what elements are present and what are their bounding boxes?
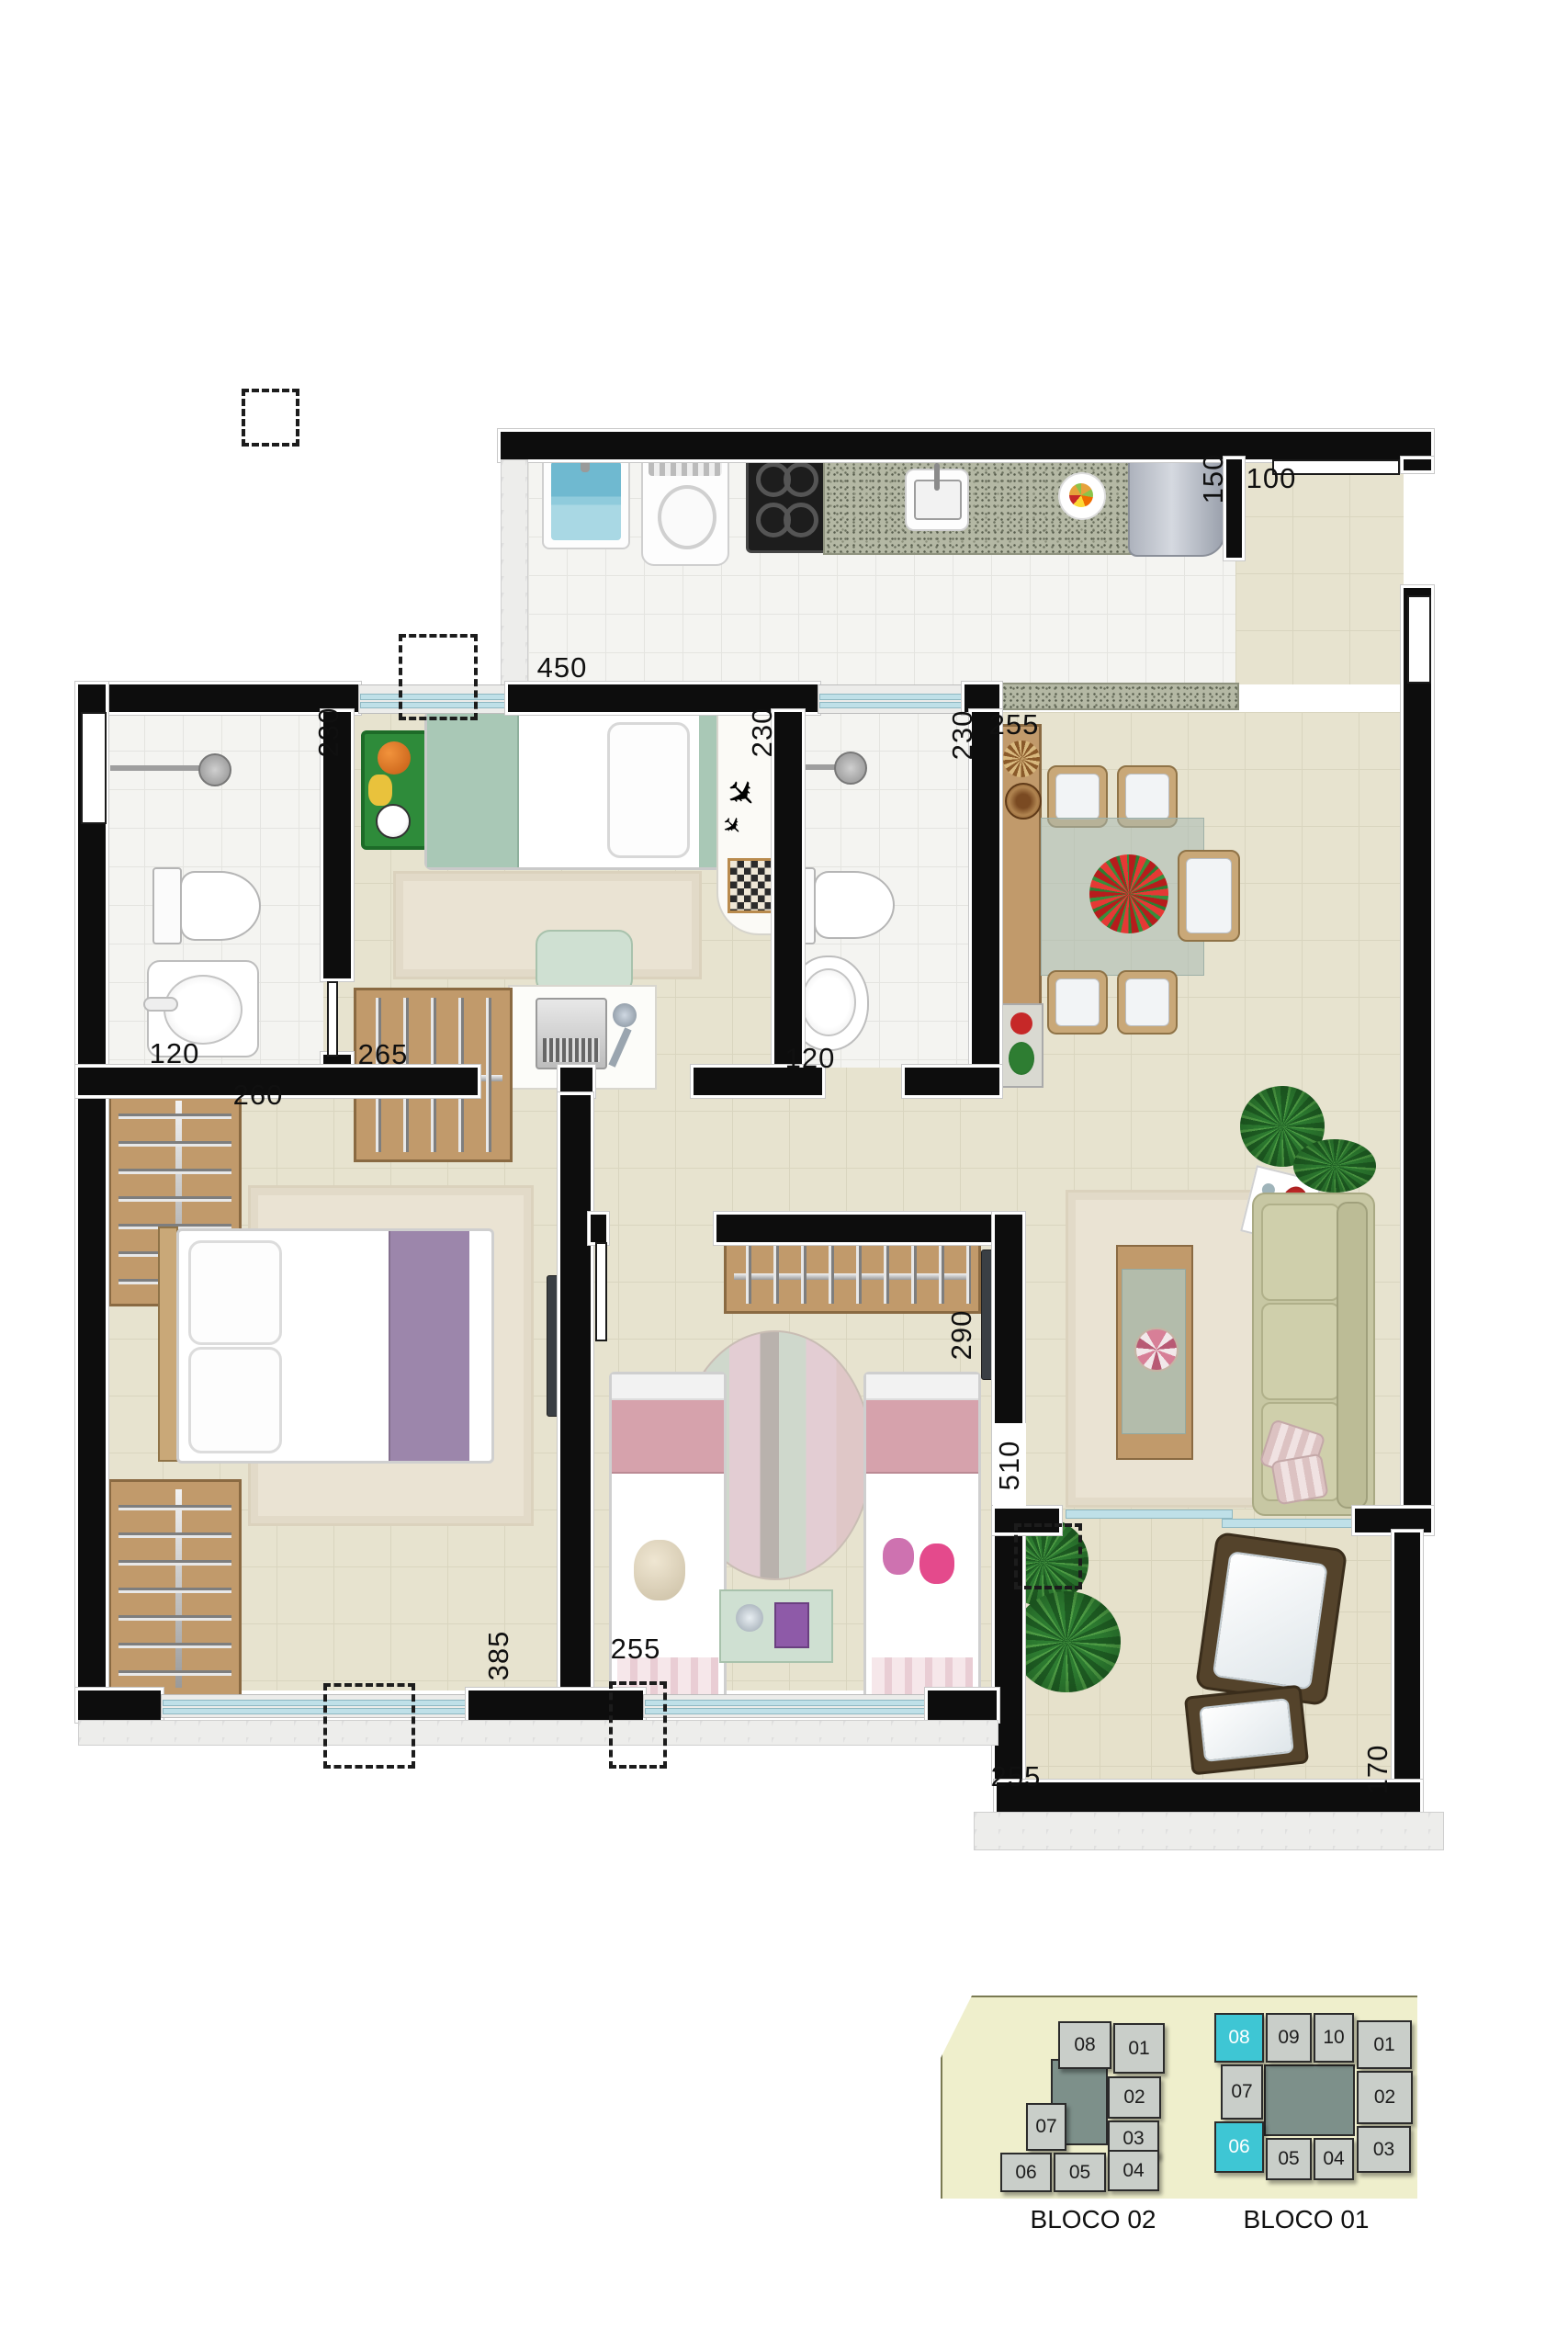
toy-box: [361, 730, 429, 850]
sofa-pillow: [1270, 1453, 1328, 1506]
teddy-bear-icon: [634, 1540, 685, 1600]
hangers-icon: [118, 1489, 231, 1688]
flower-bowl-icon: [1134, 1328, 1179, 1372]
keyplan-unit-b01-05[interactable]: 05: [1266, 2138, 1312, 2180]
keyplan-unit-b02-07[interactable]: 07: [1026, 2103, 1066, 2151]
wall: [928, 1690, 997, 1720]
plush-toy-icon: [368, 775, 392, 806]
sink-faucet: [934, 463, 940, 491]
laundry-tub-water: [551, 461, 621, 540]
kids-single-bed: [424, 710, 726, 870]
chair-seat: [1125, 978, 1169, 1026]
keyplan-unit-b01-09[interactable]: 09: [1266, 2013, 1312, 2063]
keyplan-block01-label: BLOCO 01: [1205, 2205, 1407, 2234]
wall: [997, 1782, 1420, 1812]
armchair-cushion: [1213, 1551, 1328, 1690]
window-glass: [163, 1700, 468, 1706]
palm-plant-icon: [1012, 1591, 1121, 1692]
chair-seat: [1186, 858, 1232, 933]
bed-blanket-pink: [866, 1400, 978, 1474]
basketball-icon: [378, 741, 411, 775]
master-double-bed: [176, 1228, 494, 1464]
bed-blanket-pink: [612, 1400, 724, 1474]
dim-label-girls-wardrobe: 290: [945, 1293, 978, 1377]
keyplan-unit-b02-06[interactable]: 06: [1000, 2153, 1052, 2192]
keyplan-unit-b01-04[interactable]: 04: [1314, 2138, 1354, 2180]
keyplan-unit-b01-10[interactable]: 10: [1314, 2013, 1354, 2063]
window-glass: [645, 1708, 928, 1714]
wall: [591, 1215, 606, 1242]
wall: [905, 1068, 999, 1095]
sideboard-tray: [1001, 1003, 1043, 1088]
keyplan-unit-b01-03[interactable]: 03: [1357, 2126, 1411, 2173]
flower-bowl-icon: [1010, 1012, 1032, 1035]
hangers-icon: [734, 1243, 971, 1304]
ac-unit-dashed-box: [323, 1683, 415, 1769]
dim-label-bath1-len: 230: [312, 690, 345, 775]
balcony-armchair: [1195, 1532, 1348, 1706]
bed-pillow: [612, 1374, 724, 1400]
bed-blanket: [427, 713, 519, 867]
coffee-table: [1116, 1245, 1193, 1460]
wall: [1355, 1509, 1431, 1532]
dim-label-bath2-w: 120: [768, 1042, 852, 1075]
window-outer-sill: [78, 1720, 998, 1746]
book-icon: [774, 1602, 809, 1648]
window-glass: [163, 1708, 468, 1714]
dim-label-dining: 255: [972, 708, 1056, 741]
wall: [560, 1095, 591, 1690]
burner-icon: [784, 503, 818, 537]
window-bar: [1407, 595, 1431, 684]
girls-wardrobe: [724, 1233, 981, 1314]
dim-label-kitchen: 450: [520, 651, 604, 684]
dining-chair: [1178, 850, 1240, 942]
balcony-ottoman: [1184, 1685, 1309, 1776]
wall: [501, 432, 1431, 459]
bed-pillow: [188, 1347, 282, 1453]
keyplan-unit-b01-08-highlighted[interactable]: 08: [1214, 2013, 1264, 2063]
dim-label-girls-w: 255: [593, 1633, 678, 1666]
washer-door: [658, 485, 716, 549]
dim-label-kids-len: 230: [746, 690, 779, 775]
sofa-backrest: [1337, 1202, 1368, 1509]
laptop-icon: [536, 998, 607, 1069]
dim-label-living: 510: [993, 1423, 1026, 1508]
chair-seat: [1055, 978, 1100, 1026]
fruit-icon: [1069, 483, 1093, 507]
ac-unit-dashed-box: [609, 1681, 667, 1769]
window-sill: [643, 1694, 930, 1718]
wall: [1404, 588, 1431, 1509]
sink-basin: [801, 968, 856, 1036]
airplane-icon: ✈: [715, 809, 749, 843]
keyplan-unit-b01-02[interactable]: 02: [1357, 2071, 1413, 2124]
bed-pillow: [607, 722, 690, 858]
window-glass: [819, 702, 964, 708]
window-glass: [645, 1700, 928, 1706]
ac-unit-dashed-box: [399, 634, 478, 720]
burner-icon: [784, 462, 818, 497]
doll-icon: [883, 1538, 914, 1575]
dim-label-master-w: 260: [216, 1079, 300, 1112]
desk-lamp-arm: [608, 1027, 631, 1067]
master-wardrobe-bottom: [108, 1479, 242, 1698]
bed-pillow: [866, 1374, 978, 1400]
wall: [1404, 459, 1431, 470]
soccer-ball-icon: [376, 804, 411, 839]
girls-nightstand: [719, 1589, 833, 1663]
sofa: [1252, 1193, 1375, 1516]
plant-icon: [1293, 1139, 1376, 1193]
keyplan-unit-b02-05[interactable]: 05: [1054, 2153, 1106, 2192]
bed-footer-print: [872, 1657, 973, 1694]
bed-pillow: [188, 1240, 282, 1345]
keyplan-unit-b01-01[interactable]: 01: [1357, 2020, 1412, 2069]
tv-panel: [981, 1249, 996, 1380]
airplane-icon: ✈: [716, 769, 767, 820]
sofa-cushion: [1261, 1303, 1340, 1400]
dim-label-balcony-w: 255: [974, 1760, 1058, 1793]
wall: [78, 1690, 161, 1720]
dim-label-kids-wardrobe: 265: [341, 1038, 425, 1071]
decor-plate-icon: [1005, 783, 1042, 820]
window-sill: [161, 1694, 470, 1718]
dining-chair: [1117, 970, 1178, 1035]
keyplan-unit-b01-07[interactable]: 07: [1221, 2064, 1263, 2120]
kitchen-sink: [905, 469, 969, 531]
keyplan-core: [1264, 2064, 1355, 2136]
dim-label-bath1-w: 120: [132, 1037, 217, 1070]
laundry-tub: [542, 452, 630, 549]
floorplan-page: ✈ ✈: [0, 0, 1568, 2352]
wall: [1394, 1532, 1420, 1812]
wall: [560, 1068, 592, 1095]
washing-machine: [641, 450, 729, 566]
laptop-keyboard: [543, 1038, 600, 1062]
keyplan-block02-label: BLOCO 02: [992, 2205, 1194, 2234]
stove-cooktop: [746, 452, 829, 553]
dim-label-nook: 150: [1197, 436, 1230, 521]
plant-bowl-icon: [1009, 1042, 1034, 1075]
chair-seat: [1055, 774, 1100, 820]
lamp-icon: [736, 1604, 763, 1632]
doll-icon: [919, 1543, 954, 1584]
shower-head-icon: [198, 753, 231, 786]
door-leaf: [327, 981, 338, 1057]
toilet-bowl: [180, 871, 261, 941]
keyplan-unit-b01-06-highlighted[interactable]: 06: [1214, 2121, 1264, 2173]
dim-label-master-len: 385: [482, 1613, 515, 1698]
balcony-outer-sill: [974, 1812, 1444, 1850]
dim-label-balcony-d: 170: [1361, 1727, 1394, 1812]
sunburst-decor-icon: [1003, 741, 1040, 777]
chessboard-icon: [728, 858, 775, 913]
door-leaf: [595, 1242, 607, 1341]
keyplan-unit-b02-02[interactable]: 02: [1108, 2076, 1161, 2119]
wall: [716, 1215, 995, 1242]
keyplan-unit-b02-04[interactable]: 04: [1108, 2150, 1159, 2191]
ottoman-cushion: [1199, 1698, 1294, 1762]
wall: [78, 684, 106, 1720]
master-bed-headboard: [158, 1227, 178, 1462]
keyplan-unit-b02-08[interactable]: 08: [1058, 2021, 1111, 2069]
desk-lamp-icon: [613, 1003, 637, 1027]
toilet-tank: [152, 867, 182, 944]
window-glass: [819, 694, 964, 700]
window-bar: [81, 712, 107, 824]
sink-tap: [143, 997, 178, 1012]
dining-chair: [1047, 970, 1108, 1035]
sliding-door-glass: [1066, 1510, 1233, 1519]
washer-controls: [649, 459, 722, 476]
fruit-plate: [1058, 472, 1106, 520]
sofa-cushion: [1261, 1204, 1340, 1301]
toilet-bowl: [814, 871, 895, 939]
bed-blanket-purple: [389, 1231, 469, 1461]
keyplan-unit-b02-01[interactable]: 01: [1113, 2023, 1165, 2074]
ac-unit-dashed-box: [242, 389, 299, 447]
shower-head-icon: [834, 752, 867, 785]
dim-label-hall: 100: [1229, 462, 1314, 495]
girls-bed: [863, 1372, 981, 1701]
ac-unit-dashed-box: [1014, 1523, 1082, 1589]
kitchen-peninsula-counter: [999, 683, 1239, 710]
chair-seat: [1125, 774, 1169, 820]
table-centerpiece-flowers: [1089, 854, 1168, 933]
